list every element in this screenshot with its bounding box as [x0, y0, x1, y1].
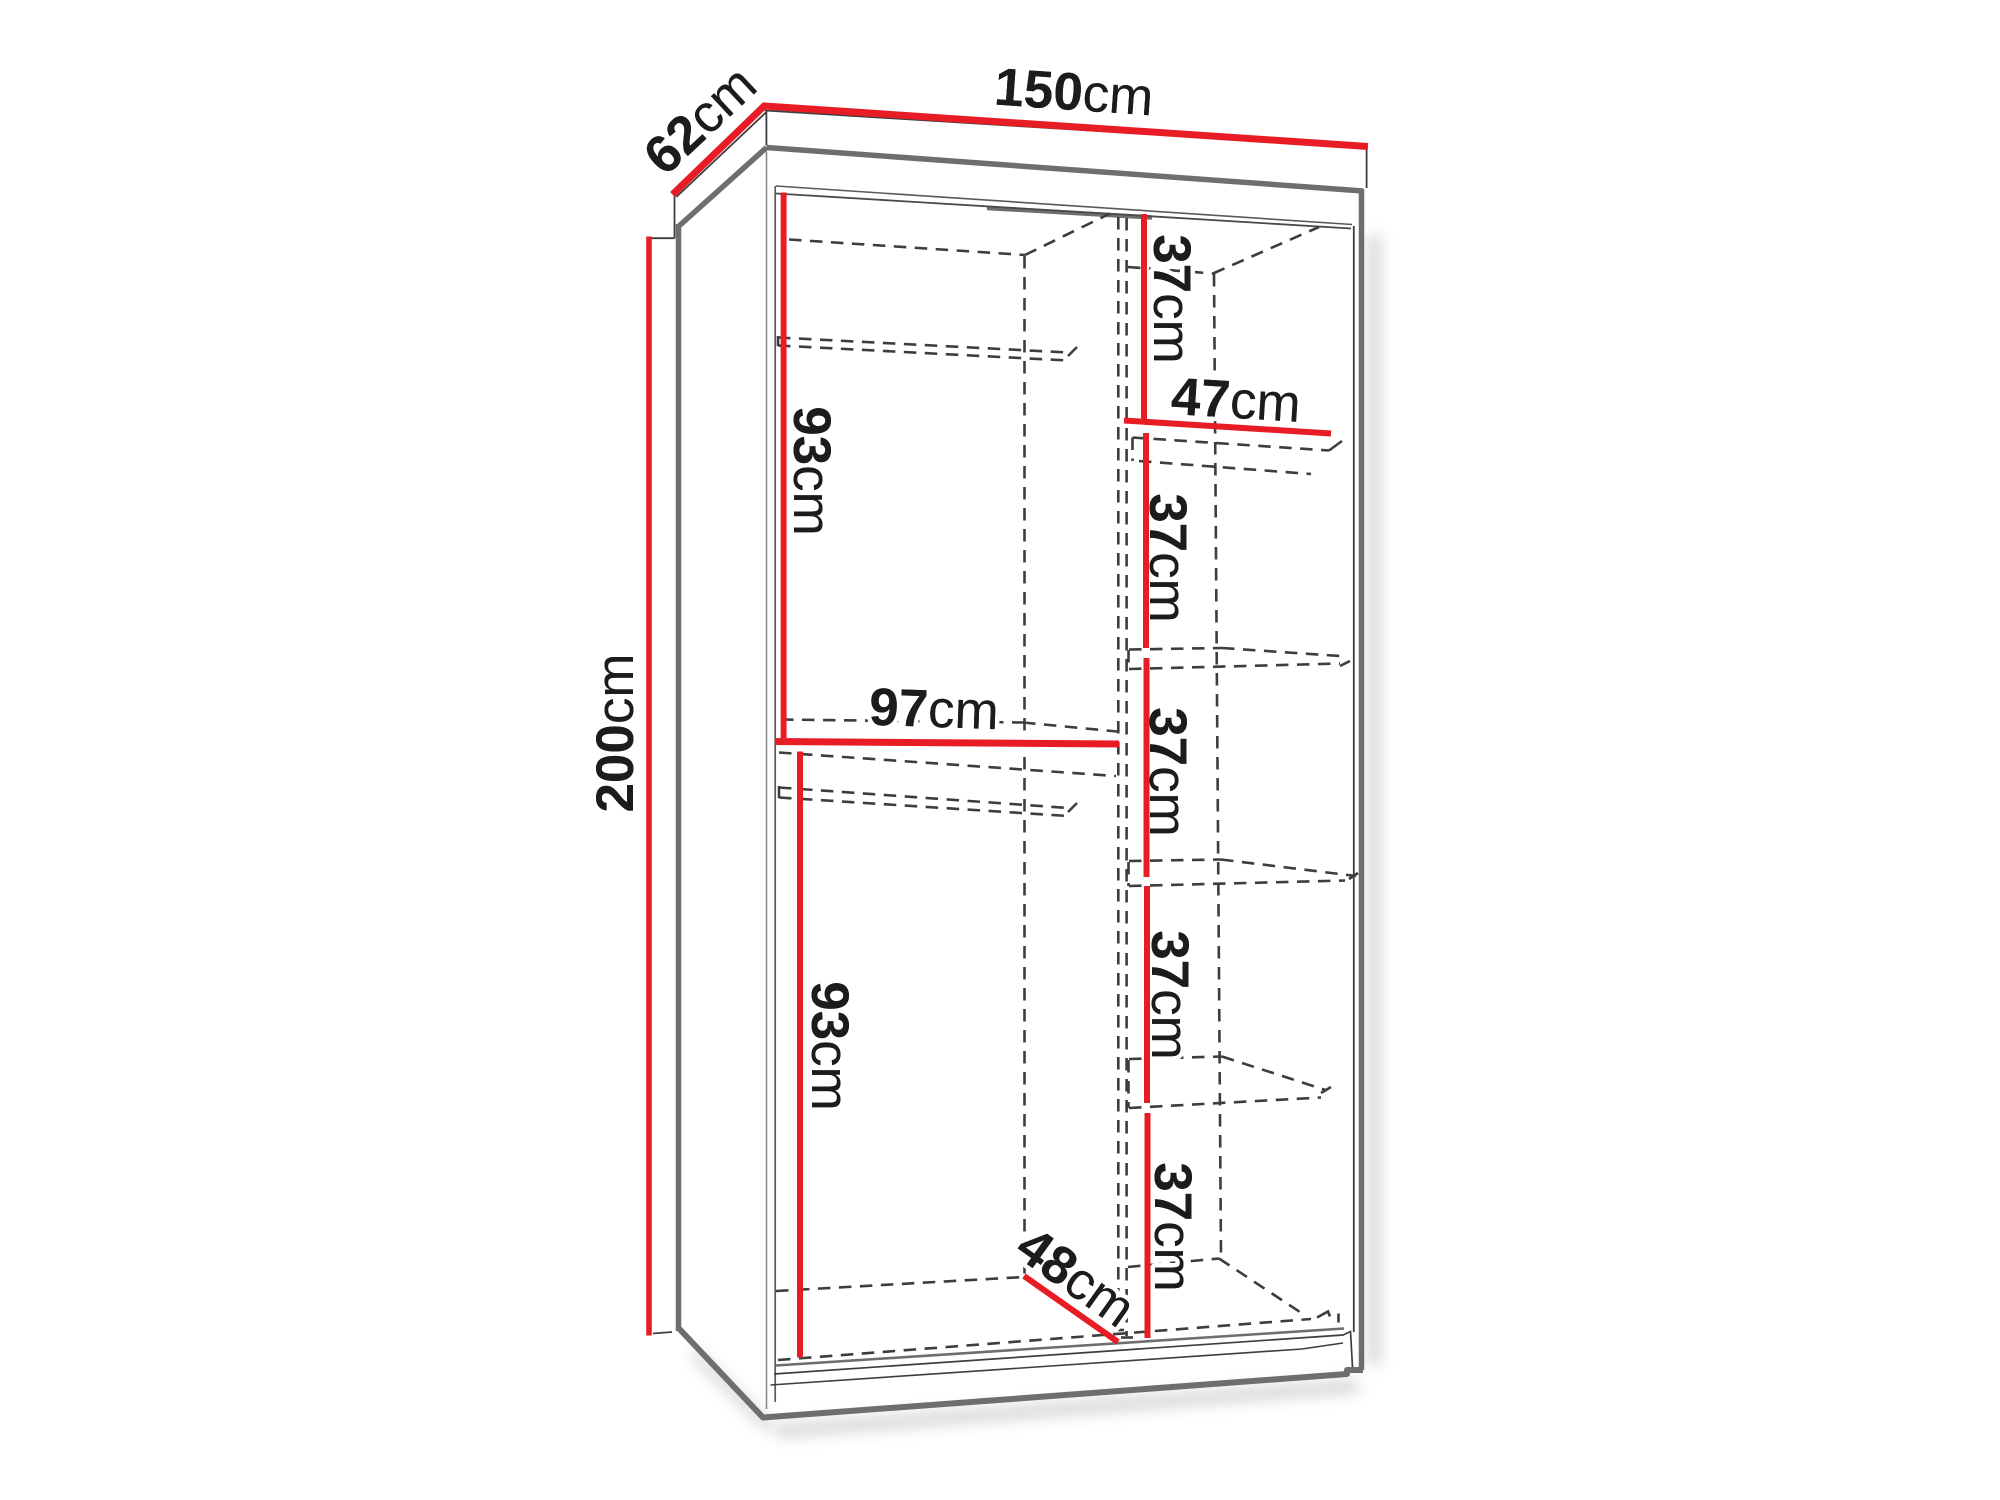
svg-text:97cm: 97cm — [868, 678, 1000, 741]
svg-text:37cm: 37cm — [1140, 930, 1199, 1060]
svg-text:93cm: 93cm — [800, 981, 859, 1111]
svg-text:37cm: 37cm — [1143, 1162, 1202, 1292]
svg-text:47cm: 47cm — [1169, 367, 1302, 434]
svg-text:37cm: 37cm — [1142, 234, 1201, 364]
svg-text:93cm: 93cm — [782, 406, 841, 536]
svg-text:200cm: 200cm — [586, 653, 645, 812]
svg-text:150cm: 150cm — [993, 58, 1156, 128]
svg-text:37cm: 37cm — [1138, 493, 1197, 623]
svg-text:37cm: 37cm — [1138, 707, 1197, 837]
